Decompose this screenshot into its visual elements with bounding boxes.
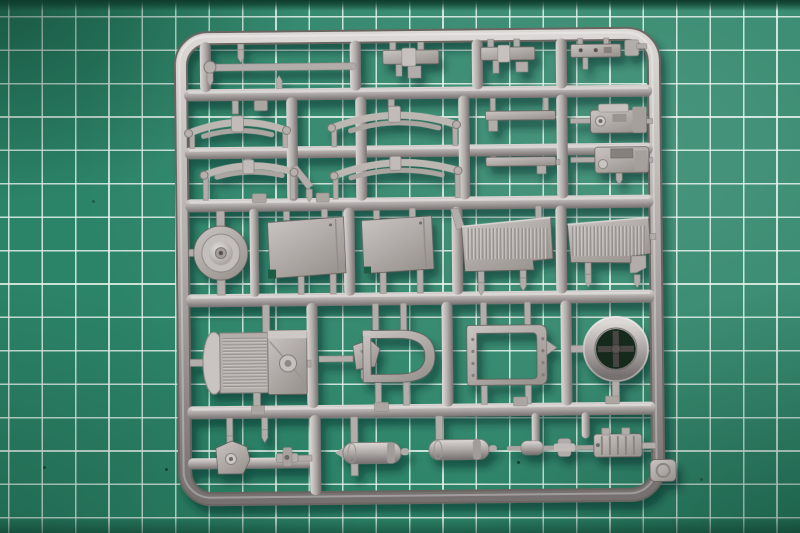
leaf-spring-3 (200, 159, 298, 179)
leaf-spring-1 (184, 115, 290, 137)
wheel-hub (194, 226, 249, 281)
door-panel-a (267, 217, 346, 279)
louver-panel-a (462, 218, 554, 272)
flat-bar-b (481, 45, 535, 63)
sprue-photo (0, 0, 800, 533)
drive-shaft (507, 438, 599, 457)
transfer-case-b (595, 147, 649, 174)
muffler-b (429, 439, 497, 460)
flat-bar-a (383, 48, 439, 67)
wheel-rim (584, 317, 649, 382)
transfer-case-a (590, 104, 646, 134)
axle-bracket (216, 441, 250, 474)
radiator (203, 330, 308, 395)
muffler-a (335, 442, 409, 464)
mounting-strip-a (485, 111, 555, 132)
ribbed-block (594, 428, 642, 458)
corner-plate (650, 459, 676, 481)
sprue (179, 32, 676, 500)
drilled-bar (571, 44, 621, 58)
mounting-strip-b (486, 157, 556, 175)
photo-scene (0, 0, 800, 533)
leaf-spring-4 (330, 156, 462, 180)
door-panel-b (361, 216, 434, 274)
riveted-frame (467, 325, 558, 386)
leaf-spring-2 (327, 106, 460, 132)
